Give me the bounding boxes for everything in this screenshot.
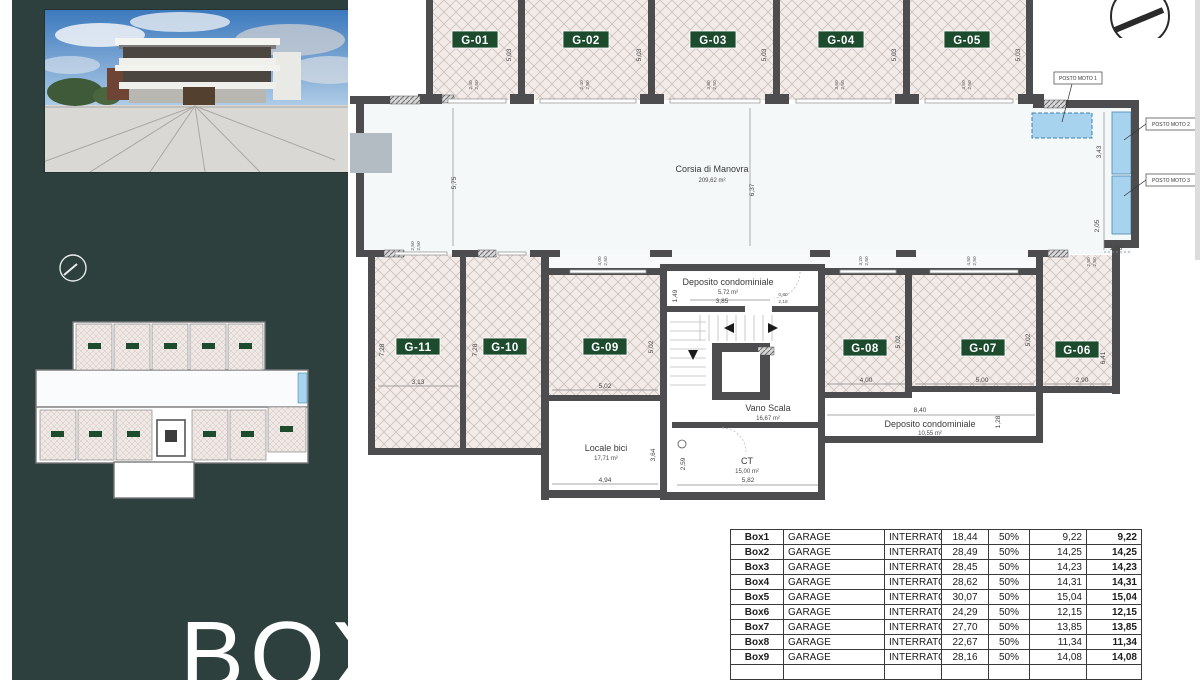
room-area: 10,55 m² (918, 431, 942, 437)
garage-label: G-04 (827, 35, 855, 47)
opening-dim: 2,40 (579, 80, 585, 90)
opening-dim: 2,50 (603, 256, 609, 266)
box-total: 13,85 (1087, 620, 1142, 635)
box-area: 18,44 (942, 530, 989, 545)
table-row: Box4 GARAGE INTERRATO 28,62 50% 14,31 14… (731, 575, 1142, 590)
dim: 5,03 (636, 48, 643, 61)
room-name: Locale bici (585, 443, 628, 453)
dim: 3,13 (412, 379, 425, 386)
box-type: GARAGE (784, 530, 885, 545)
dim: 5,03 (891, 48, 898, 61)
dim: 5,00 (976, 377, 989, 384)
building-render-photo (45, 10, 348, 172)
table-row: Box7 GARAGE INTERRATO 27,70 50% 13,85 13… (731, 620, 1142, 635)
box-area: 30,07 (942, 590, 989, 605)
sidebar-panel: BOX (12, 0, 348, 680)
dim: 4,94 (599, 477, 612, 484)
opening-dim: 2,50 (864, 256, 870, 266)
box-half: 14,25 (1030, 545, 1087, 560)
box-area: 27,70 (942, 620, 989, 635)
box-pct: 50% (989, 605, 1030, 620)
room-area: 16,67 m² (756, 416, 780, 422)
sidebar-compass-icon (57, 252, 89, 284)
dim: 1,28 (995, 415, 1002, 428)
dim: 2,05 (1094, 219, 1101, 232)
box-pct: 50% (989, 545, 1030, 560)
box-id: Box5 (731, 590, 784, 605)
corridor-floor (364, 104, 1131, 272)
table-row: Box3 GARAGE INTERRATO 28,45 50% 14,23 14… (731, 560, 1142, 575)
opening-dim: 2,50 (416, 241, 422, 251)
box-pct: 50% (989, 590, 1030, 605)
room-name: Corsia di Manovra (675, 164, 748, 174)
box-type: GARAGE (784, 605, 885, 620)
box-id: Box9 (731, 650, 784, 665)
box-floor: INTERRATO (885, 650, 942, 665)
opening-dim: 2,50 (967, 80, 973, 90)
room-area: 17,71 m² (594, 456, 618, 462)
box-half: 14,31 (1030, 575, 1087, 590)
box-area: 22,67 (942, 635, 989, 650)
scan-edge-strip (1195, 0, 1200, 260)
dim: 5,82 (742, 477, 755, 484)
garage-label: G-07 (969, 343, 997, 355)
opening-dim: 4,50 (966, 256, 972, 266)
table-row: Box2 GARAGE INTERRATO 28,49 50% 14,25 14… (731, 545, 1142, 560)
box-floor: INTERRATO (885, 575, 942, 590)
opening-dim: 2,50 (972, 256, 978, 266)
opening-dim: 2,50 (1092, 257, 1098, 267)
dim: 6,37 (749, 183, 756, 196)
box-half: 12,15 (1030, 605, 1087, 620)
dim: 4,00 (860, 377, 873, 384)
box-total: 14,23 (1087, 560, 1142, 575)
box-half: 14,08 (1030, 650, 1087, 665)
box-type: GARAGE (784, 560, 885, 575)
overview-floor-plan (18, 312, 316, 504)
box-type: GARAGE (784, 575, 885, 590)
box-floor: INTERRATO (885, 635, 942, 650)
dim: 1,88 (1110, 245, 1123, 252)
garage-label: G-09 (591, 342, 619, 354)
table-row: Box9 GARAGE INTERRATO 28,16 50% 14,08 14… (731, 650, 1142, 665)
box-area: 28,62 (942, 575, 989, 590)
box-area: 28,49 (942, 545, 989, 560)
box-pct: 50% (989, 575, 1030, 590)
box-total: 14,08 (1087, 650, 1142, 665)
box-total: 12,15 (1087, 605, 1142, 620)
garage-label: G-11 (405, 342, 432, 354)
dim: 3,64 (650, 448, 657, 461)
box-id: Box1 (731, 530, 784, 545)
opening-dim: 3,60 (706, 80, 712, 90)
dim: 5,03 (1015, 48, 1022, 61)
box-id: Box6 (731, 605, 784, 620)
dim: 3,85 (716, 298, 729, 305)
box-area: 24,29 (942, 605, 989, 620)
room-area: 209,62 m² (698, 178, 725, 184)
box-floor: INTERRATO (885, 605, 942, 620)
dim: 5,03 (506, 48, 513, 61)
garage-label: G-10 (491, 342, 519, 354)
opening-dim: 4,00 (597, 256, 603, 266)
opening-dim: 2,50 (410, 241, 416, 251)
box-floor: INTERRATO (885, 590, 942, 605)
box-pct: 50% (989, 650, 1030, 665)
box-area: 28,45 (942, 560, 989, 575)
dim: 5,02 (1025, 333, 1032, 346)
box-floor: INTERRATO (885, 560, 942, 575)
opening-dim: 2,50 (712, 80, 718, 90)
room-area: 15,00 m² (735, 469, 759, 475)
room-area: 5,72 m² (718, 290, 738, 296)
garage-label: G-03 (699, 35, 727, 47)
table-row: Box1 GARAGE INTERRATO 18,44 50% 9,22 9,2… (731, 530, 1142, 545)
posto-moto-label: POSTO MOTO 3 (1152, 178, 1190, 184)
dim: 6,41 (1100, 351, 1107, 364)
box-total: 14,31 (1087, 575, 1142, 590)
opening-dim: 2,50 (585, 80, 591, 90)
garage-label: G-01 (461, 35, 489, 47)
box-id: Box8 (731, 635, 784, 650)
floor-plan: G-01 G-02 G-03 G-04 G-05 G-11 G-10 G-09 … (350, 0, 1200, 520)
box-id: Box4 (731, 575, 784, 590)
box-pct: 50% (989, 620, 1030, 635)
dim: 5,75 (451, 176, 458, 189)
box-id: Box2 (731, 545, 784, 560)
box-half: 13,85 (1030, 620, 1087, 635)
box-total: 15,04 (1087, 590, 1142, 605)
dim: 8,40 (914, 407, 927, 414)
dim: 1,49 (672, 289, 679, 302)
table-row-clipped (731, 665, 1142, 680)
garage-label: G-06 (1063, 345, 1091, 357)
box-id: Box7 (731, 620, 784, 635)
dim: 5,02 (648, 340, 655, 353)
box-type: GARAGE (784, 545, 885, 560)
box-id: Box3 (731, 560, 784, 575)
box-area-table: Box1 GARAGE INTERRATO 18,44 50% 9,22 9,2… (730, 529, 1142, 680)
room-name: Deposito condominiale (682, 277, 773, 287)
table-row: Box5 GARAGE INTERRATO 30,07 50% 15,04 15… (731, 590, 1142, 605)
box-floor: INTERRATO (885, 530, 942, 545)
dim: 5,03 (761, 48, 768, 61)
box-pct: 50% (989, 635, 1030, 650)
room-name: Deposito condominiale (884, 419, 975, 429)
box-pct: 50% (989, 560, 1030, 575)
table-row: Box6 GARAGE INTERRATO 24,29 50% 12,15 12… (731, 605, 1142, 620)
box-total: 14,25 (1087, 545, 1142, 560)
box-total: 11,34 (1087, 635, 1142, 650)
garage-label: G-05 (953, 35, 981, 47)
room-name: CT (741, 456, 753, 466)
ramp-niche (350, 133, 392, 173)
box-area: 28,16 (942, 650, 989, 665)
dim: 3,43 (1096, 145, 1103, 158)
box-half: 15,04 (1030, 590, 1087, 605)
box-type: GARAGE (784, 635, 885, 650)
table-row: Box8 GARAGE INTERRATO 22,67 50% 11,34 11… (731, 635, 1142, 650)
north-compass-icon (1095, 0, 1185, 38)
garage-label: G-02 (572, 35, 600, 47)
opening-dim: 2,50 (1086, 257, 1092, 267)
box-type: GARAGE (784, 620, 885, 635)
box-floor: INTERRATO (885, 620, 942, 635)
opening-dim: 2,40 (468, 80, 474, 90)
room-name: Vano Scala (745, 403, 790, 413)
box-total: 9,22 (1087, 530, 1142, 545)
dim: 0,80 (778, 292, 788, 298)
dim: 5,02 (895, 335, 902, 348)
dim: 2,18 (778, 299, 788, 305)
box-pct: 50% (989, 530, 1030, 545)
dim: 7,28 (472, 343, 479, 356)
opening-dim: 2,50 (474, 80, 480, 90)
box-half: 14,23 (1030, 560, 1087, 575)
dim: 5,02 (599, 383, 612, 390)
box-floor: INTERRATO (885, 545, 942, 560)
box-half: 9,22 (1030, 530, 1087, 545)
dim: 2,90 (1076, 377, 1089, 384)
opening-dim: 2,50 (840, 80, 846, 90)
garage-label: G-08 (851, 343, 879, 355)
box-half: 11,34 (1030, 635, 1087, 650)
opening-dim: 3,20 (858, 256, 864, 266)
posto-moto-label: POSTO MOTO 1 (1059, 76, 1097, 82)
posto-moto-label: POSTO MOTO 2 (1152, 122, 1190, 128)
sheet-title: BOX (180, 608, 348, 680)
opening-dim: 3,60 (834, 80, 840, 90)
dim: 2,59 (680, 457, 687, 470)
dim: 7,28 (379, 343, 386, 356)
box-type: GARAGE (784, 590, 885, 605)
opening-dim: 4,50 (961, 80, 967, 90)
box-type: GARAGE (784, 650, 885, 665)
